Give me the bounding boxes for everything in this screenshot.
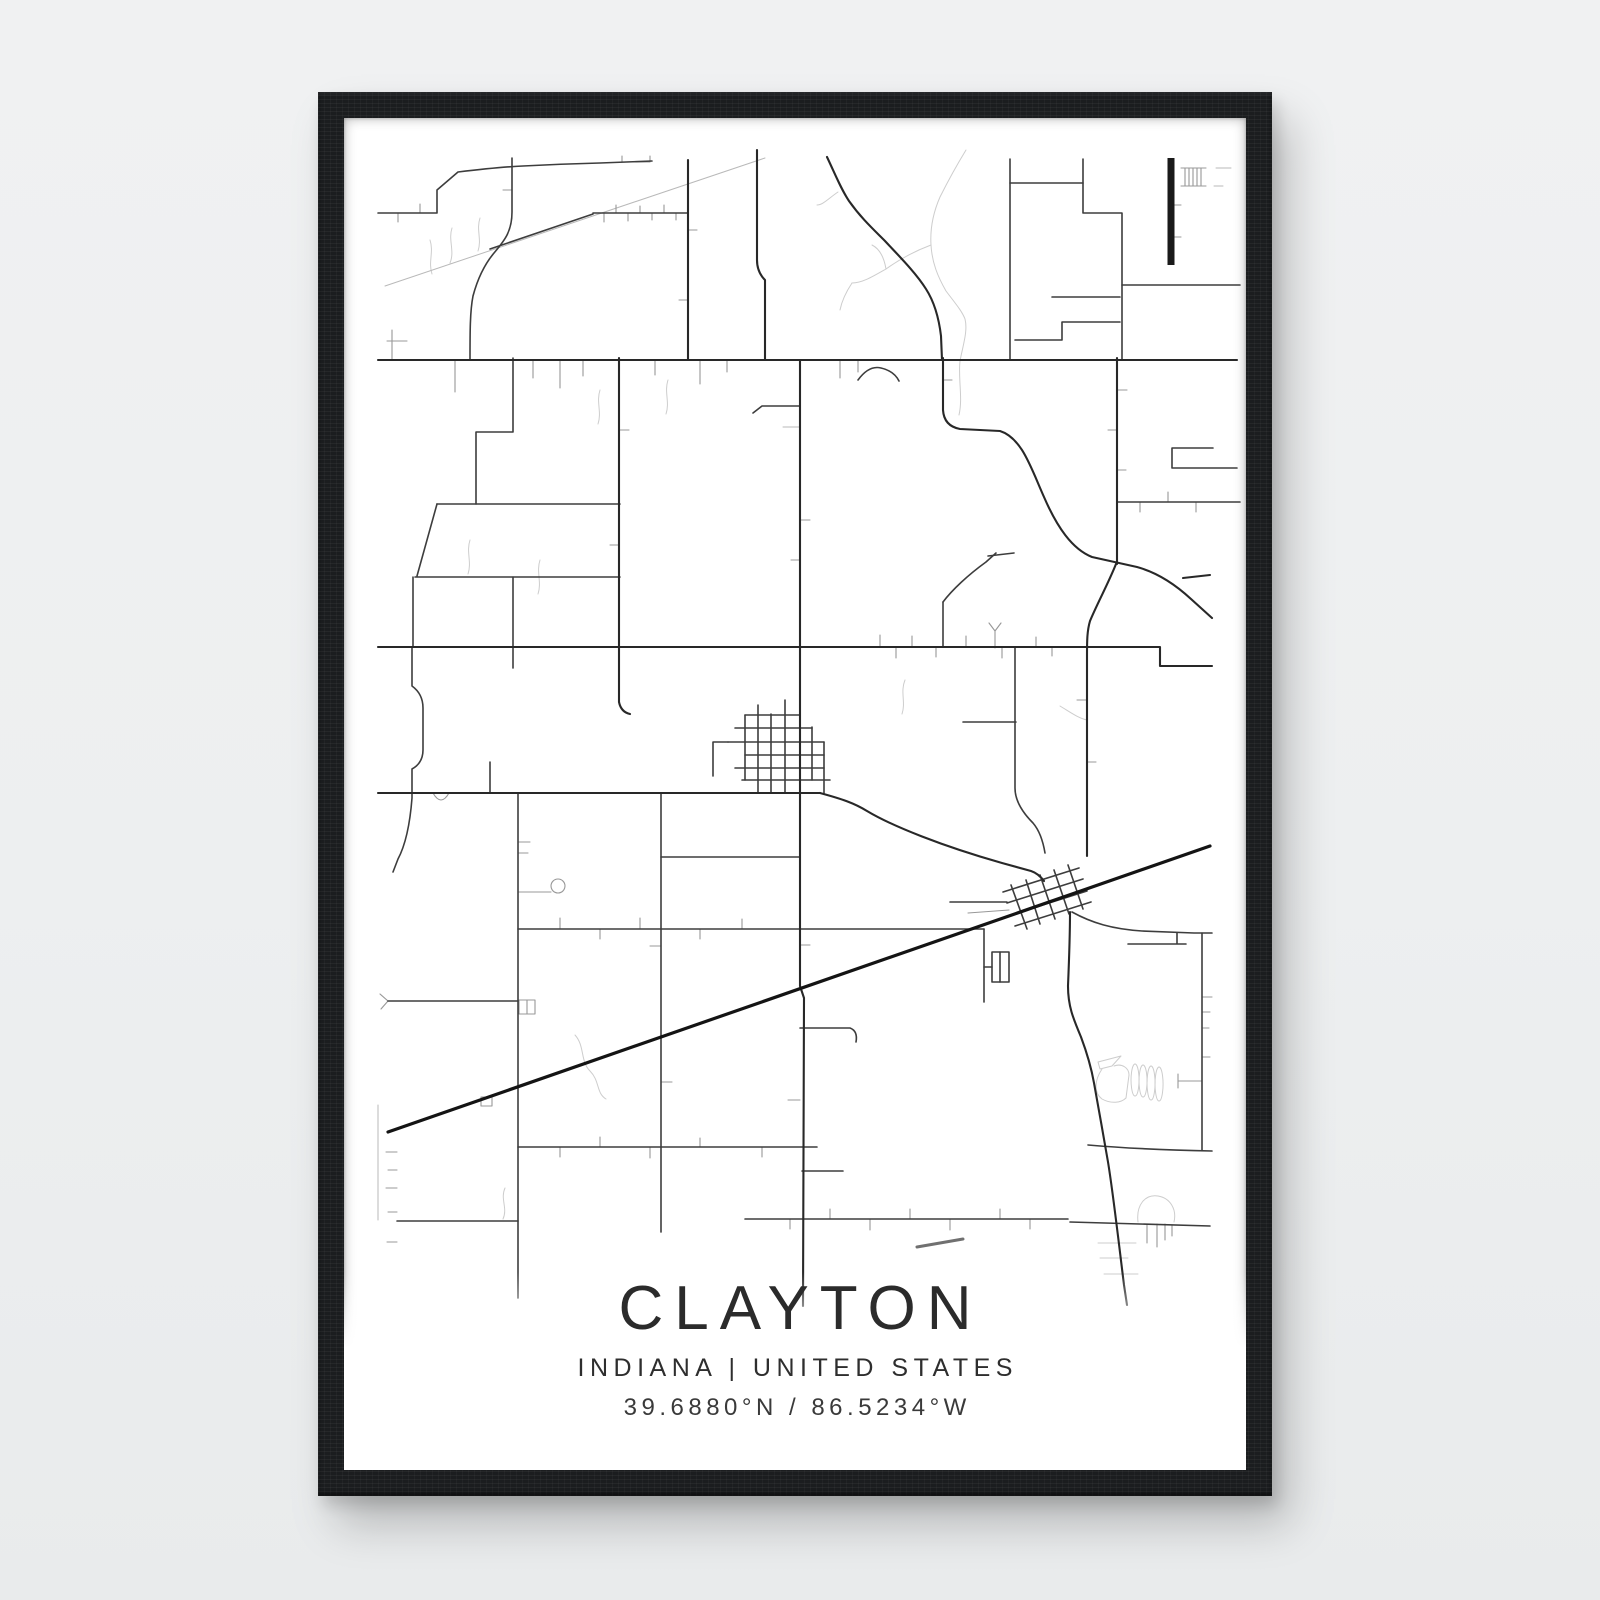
road-layers — [378, 150, 1240, 1306]
product-photo: { "poster": { "title": "CLAYTON", "subti… — [0, 0, 1600, 1600]
poster-frame: CLAYTON INDIANA | UNITED STATES 39.6880°… — [318, 92, 1272, 1496]
city-name: CLAYTON — [344, 1278, 1246, 1340]
map-poster: CLAYTON INDIANA | UNITED STATES 39.6880°… — [344, 118, 1246, 1470]
region-line: INDIANA | UNITED STATES — [344, 1355, 1246, 1383]
coordinates-line: 39.6880°N / 86.5234°W — [344, 1395, 1246, 1421]
city-map — [344, 118, 1246, 1470]
poster-caption: CLAYTON INDIANA | UNITED STATES 39.6880°… — [344, 1278, 1246, 1421]
